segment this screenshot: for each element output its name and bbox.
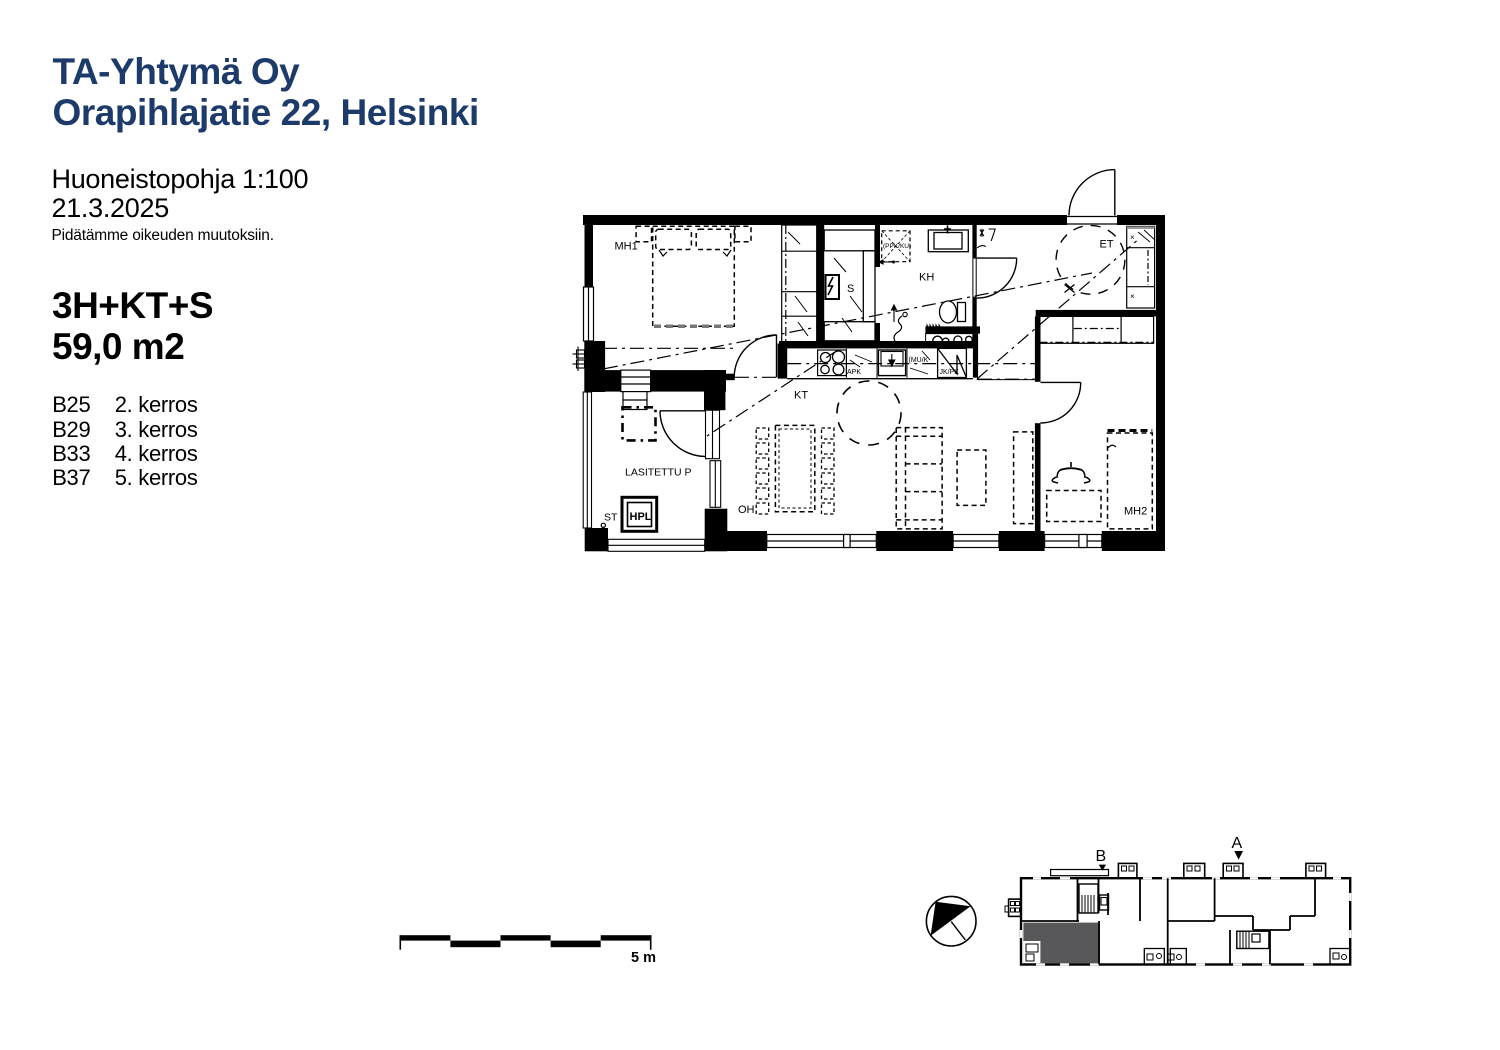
svg-text:(PPK/KU): (PPK/KU) xyxy=(883,243,911,250)
svg-text:APK: APK xyxy=(847,369,861,376)
svg-text:S: S xyxy=(847,283,854,295)
svg-text:HPL: HPL xyxy=(630,511,652,523)
svg-text:×: × xyxy=(1130,233,1135,242)
svg-text:B: B xyxy=(1096,848,1107,865)
svg-text:MH1: MH1 xyxy=(615,241,638,253)
svg-text:A: A xyxy=(1232,835,1243,852)
svg-text:LASITETTU P: LASITETTU P xyxy=(625,467,692,479)
svg-text:JK/PK: JK/PK xyxy=(940,369,960,376)
svg-text:(MU/K: (MU/K xyxy=(909,357,929,364)
svg-text:KT: KT xyxy=(794,390,808,402)
svg-text:OH: OH xyxy=(738,504,755,516)
svg-text:KH: KH xyxy=(919,272,934,284)
svg-text:5 m: 5 m xyxy=(631,950,656,966)
svg-text:ST: ST xyxy=(604,512,618,524)
svg-text:ET: ET xyxy=(1100,239,1114,251)
svg-text:MH2: MH2 xyxy=(1124,506,1147,518)
svg-text:×: × xyxy=(1130,292,1135,301)
